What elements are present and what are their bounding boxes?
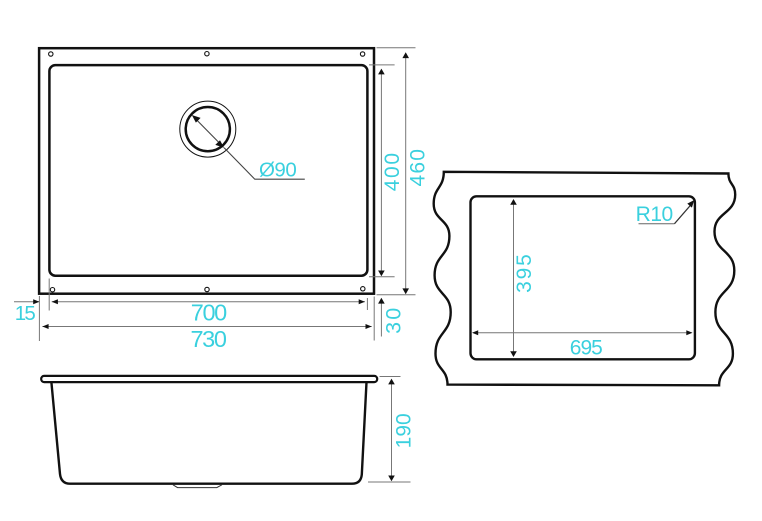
svg-text:Ø90: Ø90 [259, 158, 296, 181]
svg-text:190: 190 [392, 413, 415, 448]
svg-text:700: 700 [191, 300, 227, 326]
svg-text:695: 695 [570, 336, 602, 359]
svg-text:395: 395 [513, 252, 536, 292]
svg-text:15: 15 [15, 302, 36, 325]
svg-text:460: 460 [407, 148, 430, 187]
svg-text:730: 730 [190, 326, 226, 352]
svg-text:400: 400 [381, 151, 404, 191]
svg-text:R10: R10 [636, 203, 673, 226]
svg-text:30: 30 [381, 306, 405, 334]
